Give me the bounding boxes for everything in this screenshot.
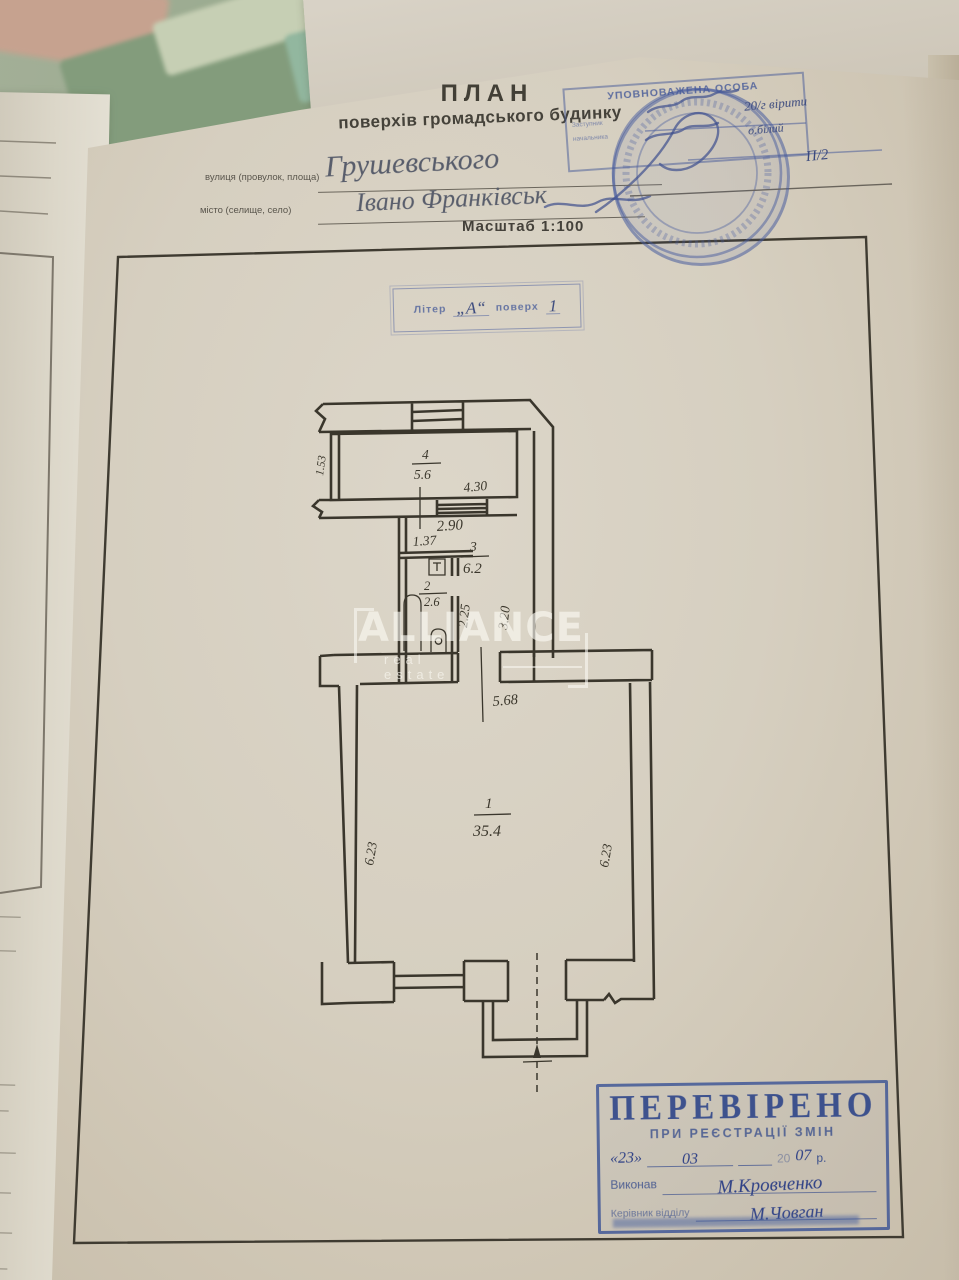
photographed-document: ним им) тям xyxy=(0,0,959,1280)
verified-day: «23» xyxy=(610,1149,642,1167)
watermark-bracket-left xyxy=(354,608,374,663)
authority-stamp-left-text: Заступник xyxy=(572,120,603,129)
round-seal-stamp xyxy=(612,88,790,266)
verified-stamp: ПЕРЕВІРЕНО ПРИ РЕЄСТРАЦІЇ ЗМІН «23» 03 2… xyxy=(596,1080,890,1234)
floor-label: поверх xyxy=(496,301,539,314)
liter-label: Літер xyxy=(414,303,447,316)
ink-note-3: П/2 xyxy=(805,147,829,166)
watermark-bracket-right xyxy=(568,633,588,688)
verified-year: 07 xyxy=(795,1147,811,1165)
executor-label: Виконав xyxy=(610,1177,657,1192)
liter-floor-stamp: Літер „А“ поверх 1 xyxy=(392,284,581,333)
executor-signature: М.Кровченко xyxy=(717,1172,823,1199)
liter-value: „А“ xyxy=(453,300,489,317)
verified-stamp-date-row: «23» 03 20 07 р. xyxy=(610,1145,876,1168)
ink-note-2: о.білий xyxy=(747,120,784,138)
watermark-tagline: real estate xyxy=(384,652,495,682)
street-field-label: вулиця (провулок, площа) xyxy=(205,172,319,183)
verified-stamp-title: ПЕРЕВІРЕНО xyxy=(609,1087,875,1127)
verified-year-prefix: 20 xyxy=(777,1151,791,1165)
verified-month: 03 xyxy=(682,1151,698,1168)
verified-year-suffix: р. xyxy=(816,1151,826,1165)
verified-executor-row: Виконав М.Кровченко xyxy=(610,1169,876,1196)
authority-stamp-left-text2: начальника xyxy=(573,133,608,142)
scale-label: Масштаб 1:100 xyxy=(462,218,584,235)
city-field-label: місто (селище, село) xyxy=(200,205,291,216)
agency-watermark: ALLIANCE real estate xyxy=(358,606,582,682)
floor-value: 1 xyxy=(546,298,561,314)
watermark-brand: ALLIANCE xyxy=(358,606,582,650)
